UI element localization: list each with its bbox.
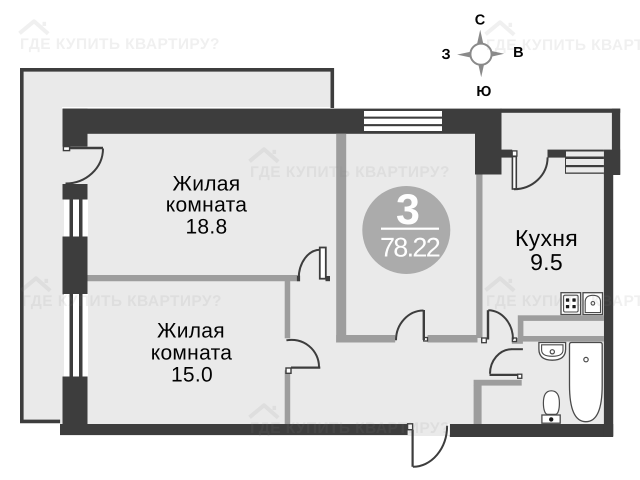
svg-text:15.0: 15.0 (171, 364, 213, 387)
svg-text:С: С (475, 13, 486, 29)
svg-text:ГДЕ КУПИТЬ КВАРТИРУ?: ГДЕ КУПИТЬ КВАРТИРУ? (20, 36, 220, 53)
svg-text:78.22: 78.22 (380, 233, 440, 263)
svg-text:ГДЕ КУПИТЬ КВАРТИРУ?: ГДЕ КУПИТЬ КВАРТИРУ? (486, 37, 640, 54)
svg-text:Кухня: Кухня (515, 225, 578, 251)
svg-text:ГДЕ КУПИТЬ КВАРТИРУ?: ГДЕ КУПИТЬ КВАРТИРУ? (22, 293, 222, 310)
svg-text:ГДЕ КУПИТЬ КВАРТИРУ?: ГДЕ КУПИТЬ КВАРТИРУ? (486, 293, 640, 310)
svg-text:З: З (441, 47, 450, 63)
svg-text:9.5: 9.5 (530, 249, 563, 275)
svg-text:Жилая: Жилая (173, 173, 241, 196)
svg-text:ГДЕ КУПИТЬ КВАРТИРУ?: ГДЕ КУПИТЬ КВАРТИРУ? (250, 164, 450, 181)
svg-text:3: 3 (396, 186, 420, 234)
svg-text:Ю: Ю (476, 84, 491, 100)
svg-text:ГДЕ КУПИТЬ КВАРТИРУ?: ГДЕ КУПИТЬ КВАРТИРУ? (250, 420, 450, 437)
svg-text:комната: комната (166, 194, 248, 217)
svg-text:18.8: 18.8 (185, 216, 227, 239)
svg-text:Жилая: Жилая (157, 320, 225, 343)
svg-text:комната: комната (151, 342, 233, 365)
